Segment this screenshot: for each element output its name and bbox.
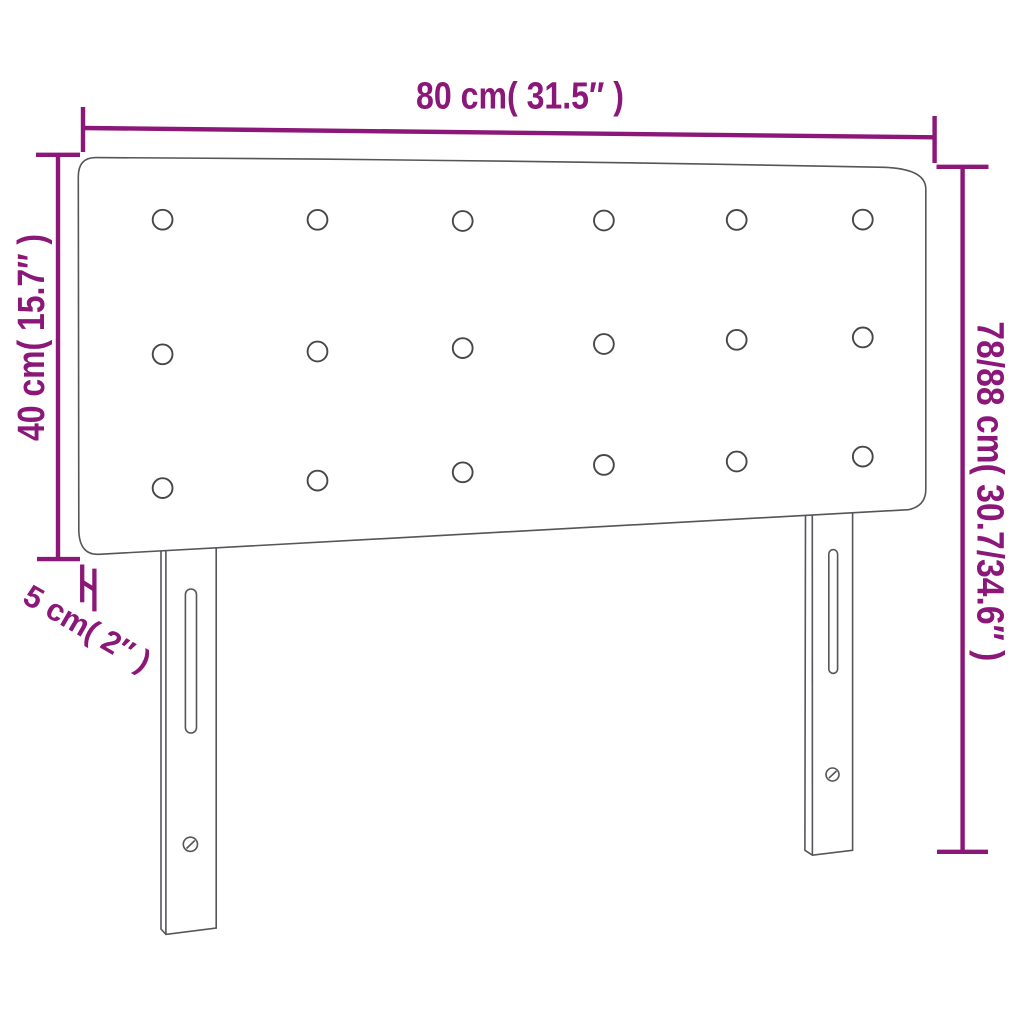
svg-text:78/88 cm( 30.7/34.6″ ): 78/88 cm( 30.7/34.6″ ) [969, 321, 1011, 661]
svg-text:80 cm( 31.5″ ): 80 cm( 31.5″ ) [416, 75, 624, 117]
svg-text:40 cm( 15.7″ ): 40 cm( 15.7″ ) [11, 234, 53, 441]
